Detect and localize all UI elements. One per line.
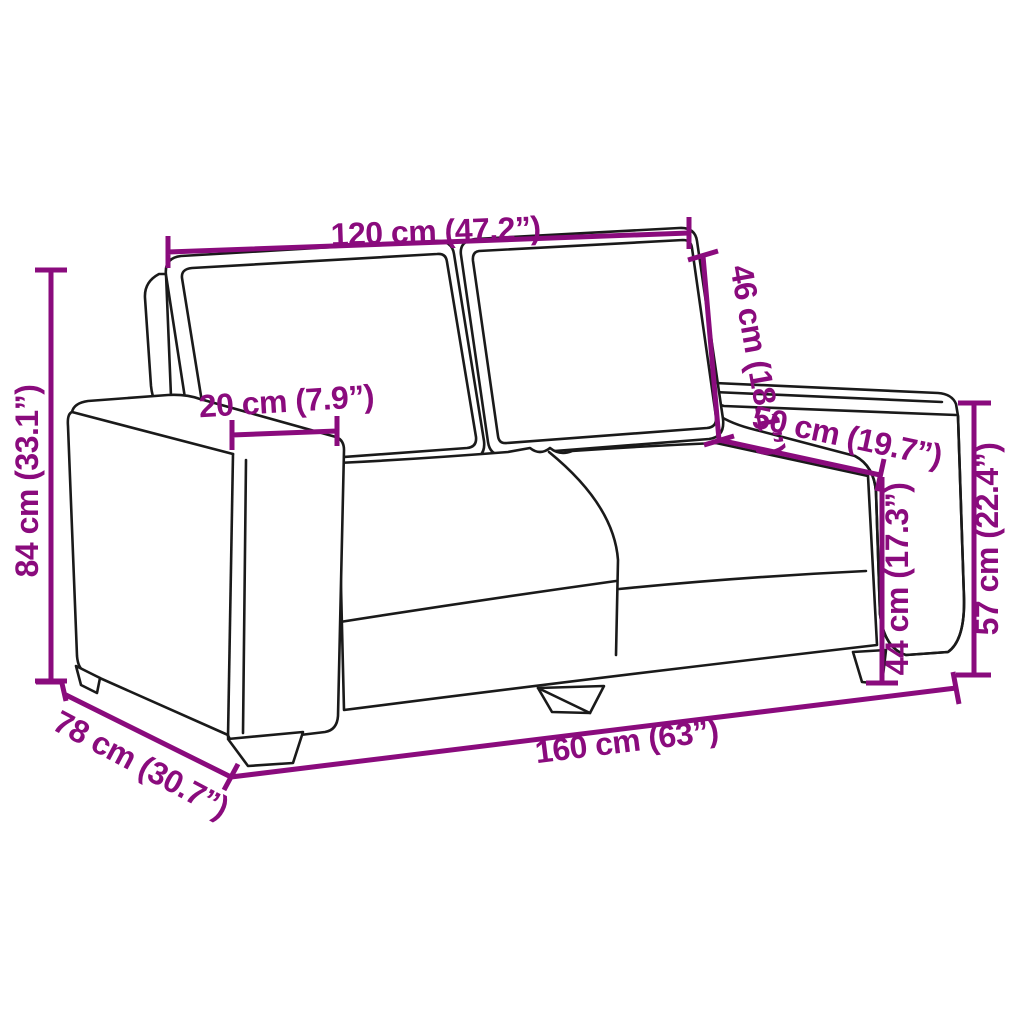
sofa-seat — [338, 443, 877, 710]
sofa-leg-center — [538, 686, 604, 713]
sofa-drawing — [68, 228, 964, 766]
diagram-svg: 120 cm (47.2”) 46 cm (18.1”) 20 cm (7.9”… — [0, 0, 1024, 1024]
dim-label-total-height: 84 cm (33.1”) — [9, 385, 45, 578]
dim-label-armrest-height: 57 cm (22.4”) — [969, 443, 1005, 636]
dim-label-backrest-width: 120 cm (47.2”) — [330, 209, 541, 252]
dim-label-total-width: 160 cm (63”) — [533, 712, 720, 770]
dim-label-seat-height: 44 cm (17.3”) — [879, 483, 915, 676]
sofa-dimension-diagram: 120 cm (47.2”) 46 cm (18.1”) 20 cm (7.9”… — [0, 0, 1024, 1024]
sofa-leg-front-left — [228, 732, 303, 766]
sofa-back-cushion-right — [461, 228, 723, 455]
